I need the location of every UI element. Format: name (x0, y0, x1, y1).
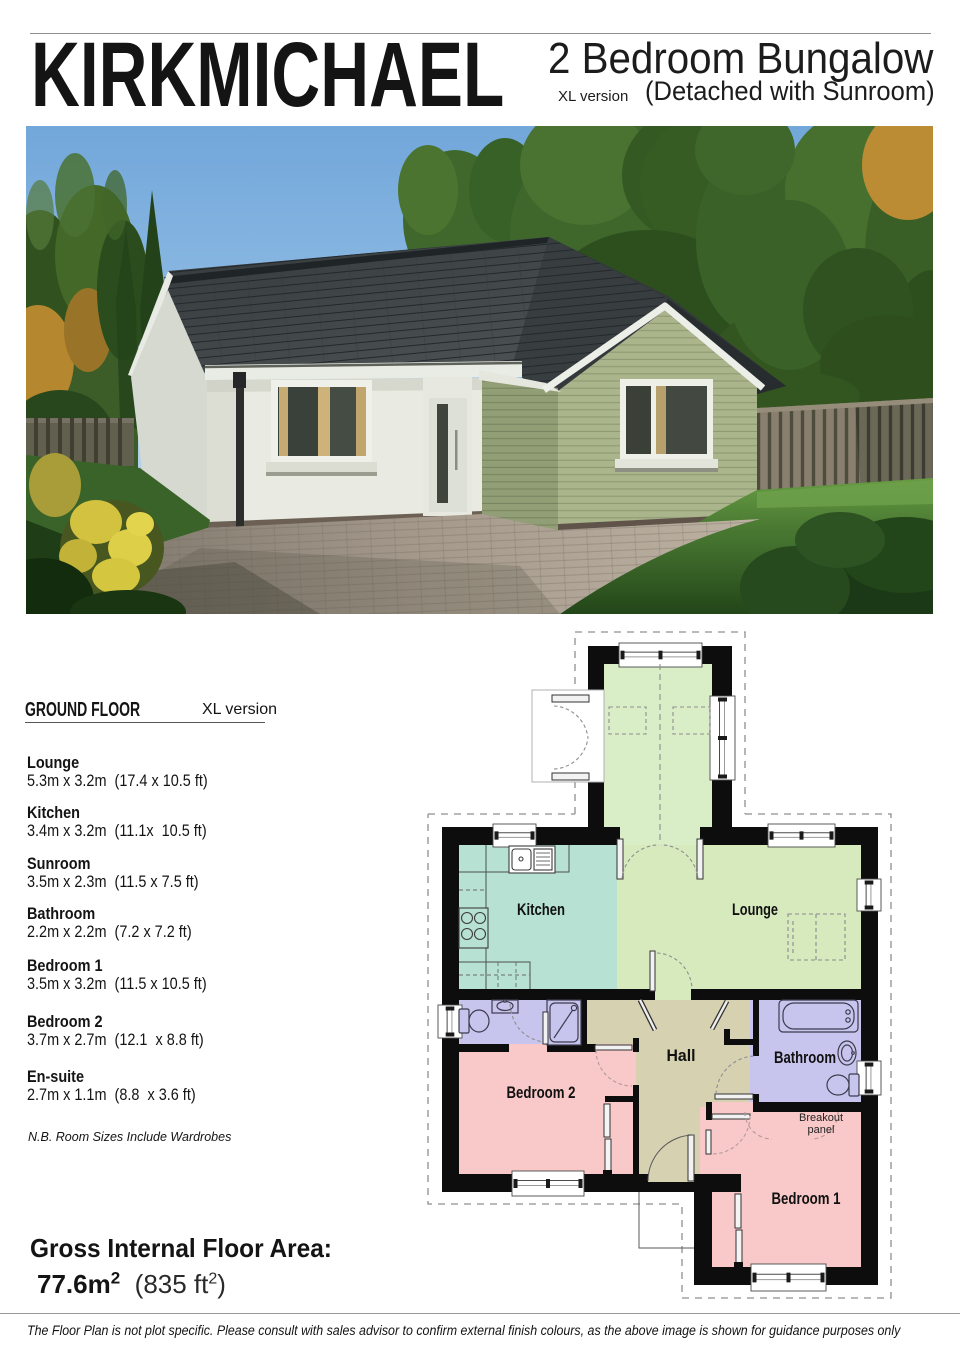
svg-text:Bedroom 2: Bedroom 2 (507, 1084, 576, 1102)
svg-text:panel: panel (808, 1124, 835, 1136)
svg-text:Lounge: Lounge (732, 901, 778, 919)
svg-text:Bathroom: Bathroom (774, 1049, 836, 1067)
svg-text:Kitchen: Kitchen (517, 901, 565, 919)
svg-text:Breakout: Breakout (799, 1112, 843, 1124)
svg-text:Bedroom 1: Bedroom 1 (772, 1190, 841, 1208)
svg-text:Hall: Hall (667, 1047, 696, 1065)
